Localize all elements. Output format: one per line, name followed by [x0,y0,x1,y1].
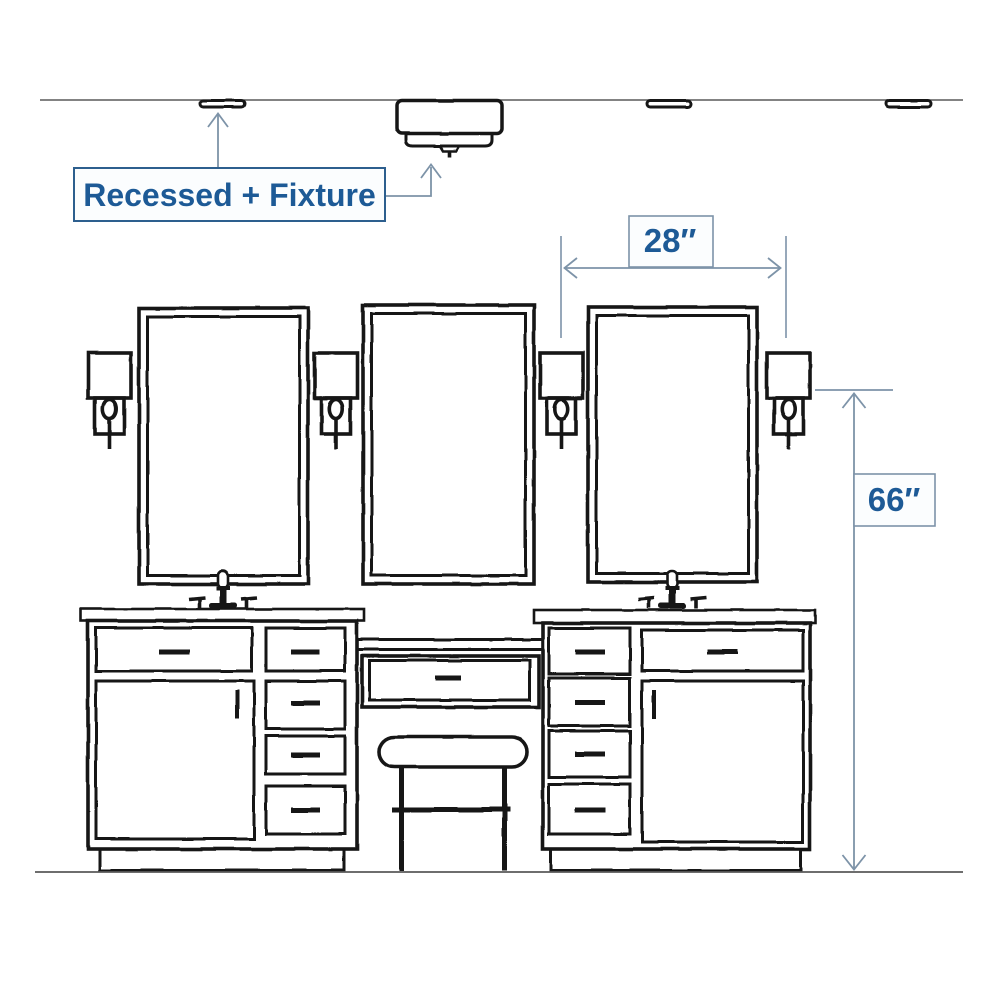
svg-text:28″: 28″ [644,222,697,259]
svg-text:66″: 66″ [868,481,921,518]
svg-text:Recessed + Fixture: Recessed + Fixture [83,177,376,213]
